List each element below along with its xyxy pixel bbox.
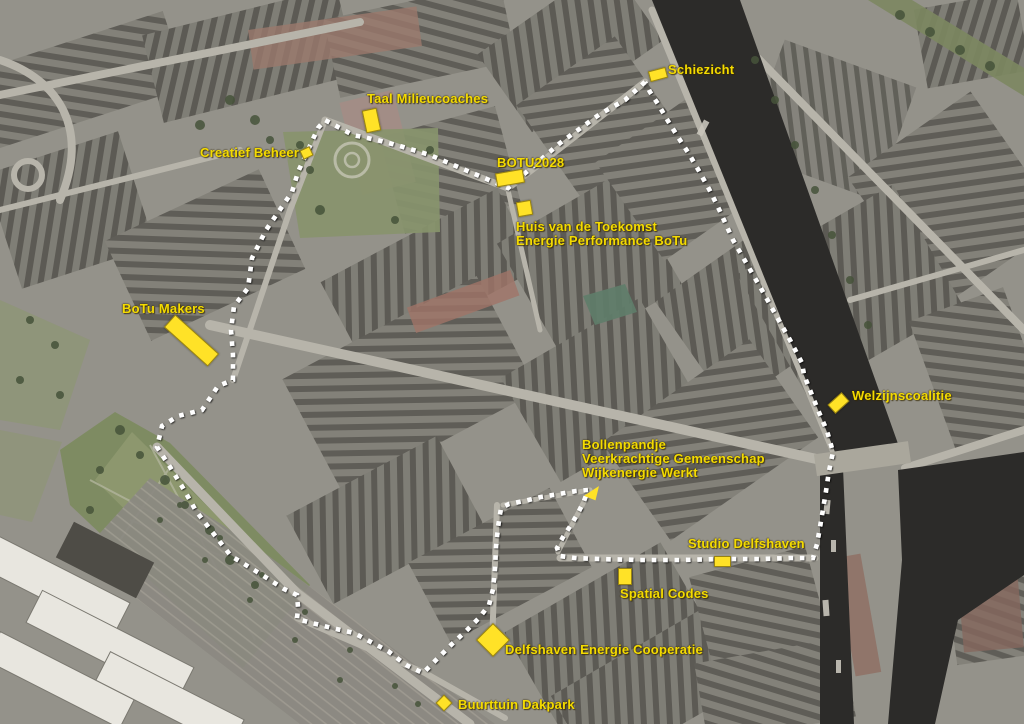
- label-line: Spatial Codes: [620, 587, 709, 601]
- label-line: Wijkenergie Werkt: [582, 466, 765, 480]
- label-botu-makers: BoTu Makers: [122, 302, 205, 316]
- marker-studio-delfshaven[interactable]: [714, 556, 731, 567]
- label-schiezicht: Schiezicht: [668, 63, 734, 77]
- marker-creatief-beheer[interactable]: [299, 146, 313, 160]
- label-bollenpandje: BollenpandjeVeerkrachtige GemeenschapWij…: [582, 438, 765, 480]
- label-line: BOTU2028: [497, 156, 564, 170]
- label-line: Bollenpandje: [582, 438, 765, 452]
- label-line: Huis van de Toekomst: [516, 220, 687, 234]
- label-line: Energie Performance BoTu: [516, 234, 687, 248]
- map-canvas: SchiezichtTaal MilieucoachesCreatief Beh…: [0, 0, 1024, 724]
- marker-botu2028[interactable]: [495, 169, 525, 188]
- marker-spatial-codes[interactable]: [618, 568, 632, 585]
- label-line: Veerkrachtige Gemeenschap: [582, 452, 765, 466]
- label-line: Studio Delfshaven: [688, 537, 805, 551]
- marker-botu-makers[interactable]: [163, 314, 218, 366]
- label-botu2028: BOTU2028: [497, 156, 564, 170]
- label-delfshaven-energie-cooperatie: Delfshaven Energie Cooperatie: [505, 643, 703, 657]
- label-line: Schiezicht: [668, 63, 734, 77]
- label-taal-milieucoaches: Taal Milieucoaches: [367, 92, 488, 106]
- marker-layer: SchiezichtTaal MilieucoachesCreatief Beh…: [0, 0, 1024, 724]
- label-line: BoTu Makers: [122, 302, 205, 316]
- marker-taal-milieucoaches[interactable]: [361, 107, 380, 133]
- label-spatial-codes: Spatial Codes: [620, 587, 709, 601]
- label-line: Buurttuin Dakpark: [458, 698, 575, 712]
- label-line: Delfshaven Energie Cooperatie: [505, 643, 703, 657]
- marker-welzijnscoalitie[interactable]: [827, 392, 849, 414]
- marker-huis-van-de-toekomst[interactable]: [515, 199, 532, 216]
- label-line: Taal Milieucoaches: [367, 92, 488, 106]
- label-studio-delfshaven: Studio Delfshaven: [688, 537, 805, 551]
- label-huis-van-de-toekomst: Huis van de ToekomstEnergie Performance …: [516, 220, 687, 248]
- marker-buurttuin-dakpark[interactable]: [436, 695, 453, 712]
- label-buurttuin-dakpark: Buurttuin Dakpark: [458, 698, 575, 712]
- label-line: Welzijnscoalitie: [852, 389, 952, 403]
- label-line: Creatief Beheer: [200, 146, 299, 160]
- marker-bollenpandje[interactable]: [582, 486, 602, 503]
- label-welzijnscoalitie: Welzijnscoalitie: [852, 389, 952, 403]
- marker-schiezicht[interactable]: [648, 66, 668, 81]
- label-creatief-beheer: Creatief Beheer: [200, 146, 299, 160]
